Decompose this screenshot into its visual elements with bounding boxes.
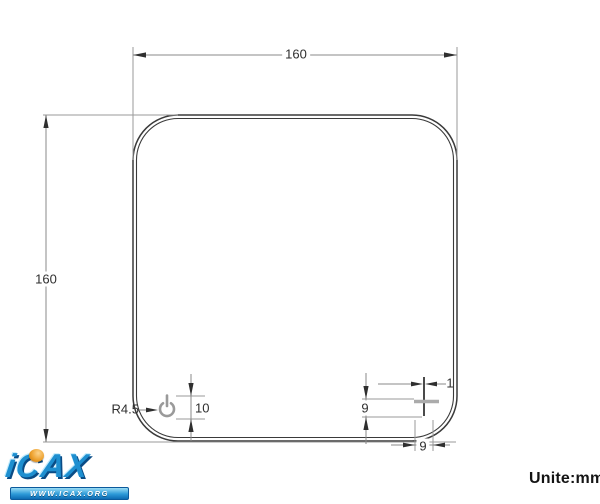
dimension-lines [46,55,457,445]
icax-logo-website: WWW.ICAX.ORG [30,490,109,498]
power-icon [160,396,174,417]
drawing-linework [0,0,600,504]
icax-logo-dot-icon [29,449,44,462]
slot-width-dimension-label: 9 [416,439,429,454]
top-width-dimension-label: 160 [282,47,310,62]
icax-logo-text: iCAX [3,448,91,484]
corner-radius-label: R4.5 [112,403,139,416]
extension-lines [43,47,457,451]
technical-drawing: 160 160 10 R4.5 9 1 9 Unite:mm iCAX WWW.… [0,0,600,504]
device-outline [133,115,457,441]
units-label: Unite:mm [529,470,600,488]
icax-logo: iCAX WWW.ICAX.ORG [4,447,136,503]
dimension-arrowheads [43,52,457,447]
power-offset-dimension-label: 10 [195,402,209,415]
icax-logo-banner: WWW.ICAX.ORG [10,487,129,500]
left-height-dimension-label: 160 [32,272,60,287]
slot-height-dimension-label: 9 [358,401,371,416]
slot-line-width-dimension-label: 1 [446,377,453,390]
